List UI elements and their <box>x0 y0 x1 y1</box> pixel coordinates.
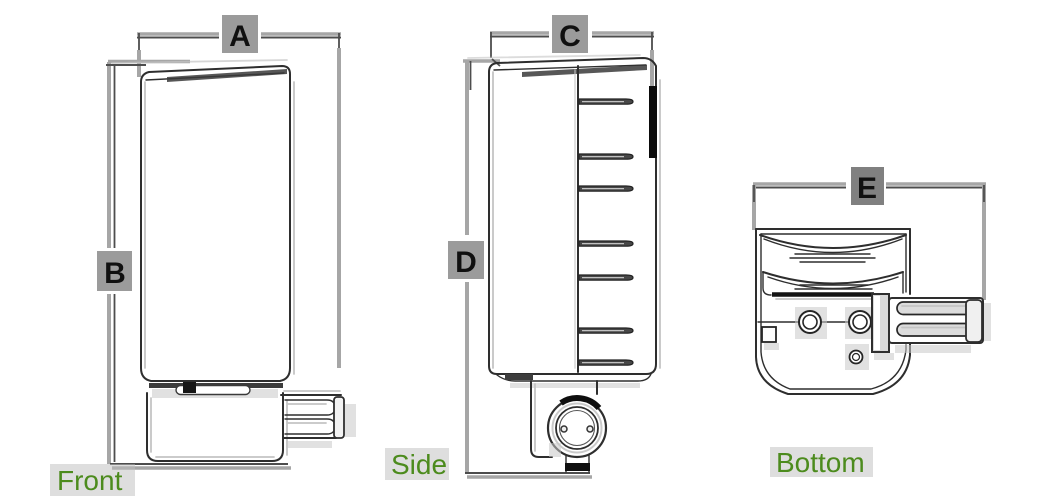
bottom-square-detail <box>762 327 776 342</box>
side-fins <box>579 99 633 365</box>
dimension-c-label: C <box>559 20 581 53</box>
side-right-dark-bar <box>649 86 657 158</box>
front-base <box>147 393 287 461</box>
bottom-saddle-arc-1 <box>760 235 906 248</box>
dimension-c: C <box>490 15 654 90</box>
front-view-drawing: A B <box>50 15 356 496</box>
side-bottom-connector <box>531 381 606 472</box>
bottom-view-label: Bottom <box>776 447 865 478</box>
side-port-stub <box>565 463 590 471</box>
front-base-junction <box>149 382 283 398</box>
side-port-pin-right <box>587 426 593 432</box>
side-body <box>468 55 660 388</box>
bottom-connector-cap <box>966 300 982 342</box>
dimension-d-label: D <box>455 246 477 279</box>
bottom-view-drawing: E <box>753 167 991 478</box>
dimension-a-label: A <box>229 20 251 53</box>
dimension-b: B <box>97 62 291 469</box>
front-view-label: Front <box>57 465 123 496</box>
dimension-b-label: B <box>104 257 126 290</box>
drawing-canvas: A B <box>0 0 1047 499</box>
front-connector-cap <box>334 397 344 438</box>
side-view-label: Side <box>391 449 447 480</box>
front-connector-prong-1 <box>285 400 335 415</box>
front-connector-prong-2 <box>285 419 335 434</box>
side-port-pin-left <box>561 426 567 432</box>
side-view-drawing: C D <box>385 15 660 480</box>
bottom-connector-slot-1 <box>897 302 974 315</box>
bottom-connector <box>872 294 991 360</box>
front-body <box>112 60 294 381</box>
orthographic-views-svg: A B <box>0 0 1047 499</box>
dimension-e-label: E <box>857 172 877 205</box>
bottom-connector-slot-2 <box>897 324 974 337</box>
front-connector <box>281 391 356 448</box>
front-dark-notch <box>183 382 196 393</box>
bottom-small-hole <box>850 351 863 364</box>
